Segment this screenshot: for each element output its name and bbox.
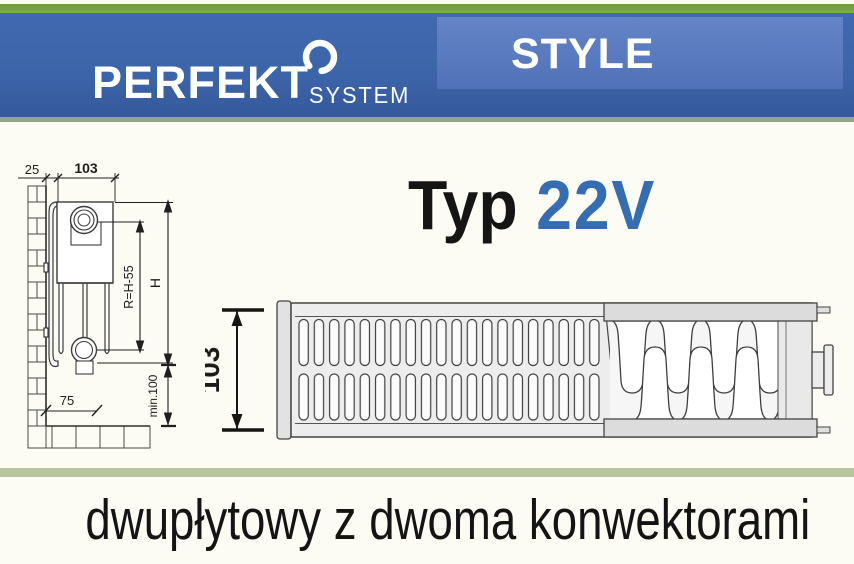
header-divider — [0, 117, 854, 122]
product-card: STYLE PERFEKT SYSTEM Typ22V — [0, 0, 854, 564]
product-description: dwupłytowy z dwoma konwektorami — [85, 492, 768, 549]
side-view-drawing: 25 103 R=H-55 H min.100 75 — [5, 135, 205, 465]
connection-stub — [812, 345, 833, 395]
radiator-section — [57, 202, 113, 374]
top-view-drawing: 103 — [205, 290, 854, 450]
brand-name: PERFEKT — [92, 60, 309, 105]
logo-ring-icon — [296, 31, 348, 83]
type-title: Typ22V — [408, 170, 656, 240]
footer-divider — [0, 468, 854, 477]
dim-label-min100: min.100 — [146, 374, 160, 417]
dim-label-103: 103 — [74, 160, 98, 176]
dim-label-r: R=H-55 — [122, 265, 136, 308]
dim-label-75: 75 — [60, 393, 74, 408]
type-prefix: Typ — [408, 166, 518, 244]
radiator-body — [277, 301, 833, 439]
dim-label-depth: 103 — [205, 347, 225, 394]
brand-subtitle: SYSTEM — [309, 84, 410, 107]
depth-dimension — [222, 310, 264, 430]
brand-header: STYLE PERFEKT SYSTEM — [0, 13, 854, 117]
dim-label-h: H — [147, 278, 163, 288]
series-name: STYLE — [511, 33, 655, 76]
green-accent-bar — [0, 4, 854, 13]
dim-label-25: 25 — [25, 162, 39, 177]
series-panel: STYLE — [437, 17, 843, 89]
grille-slats — [296, 318, 602, 422]
type-code: 22V — [536, 166, 656, 244]
